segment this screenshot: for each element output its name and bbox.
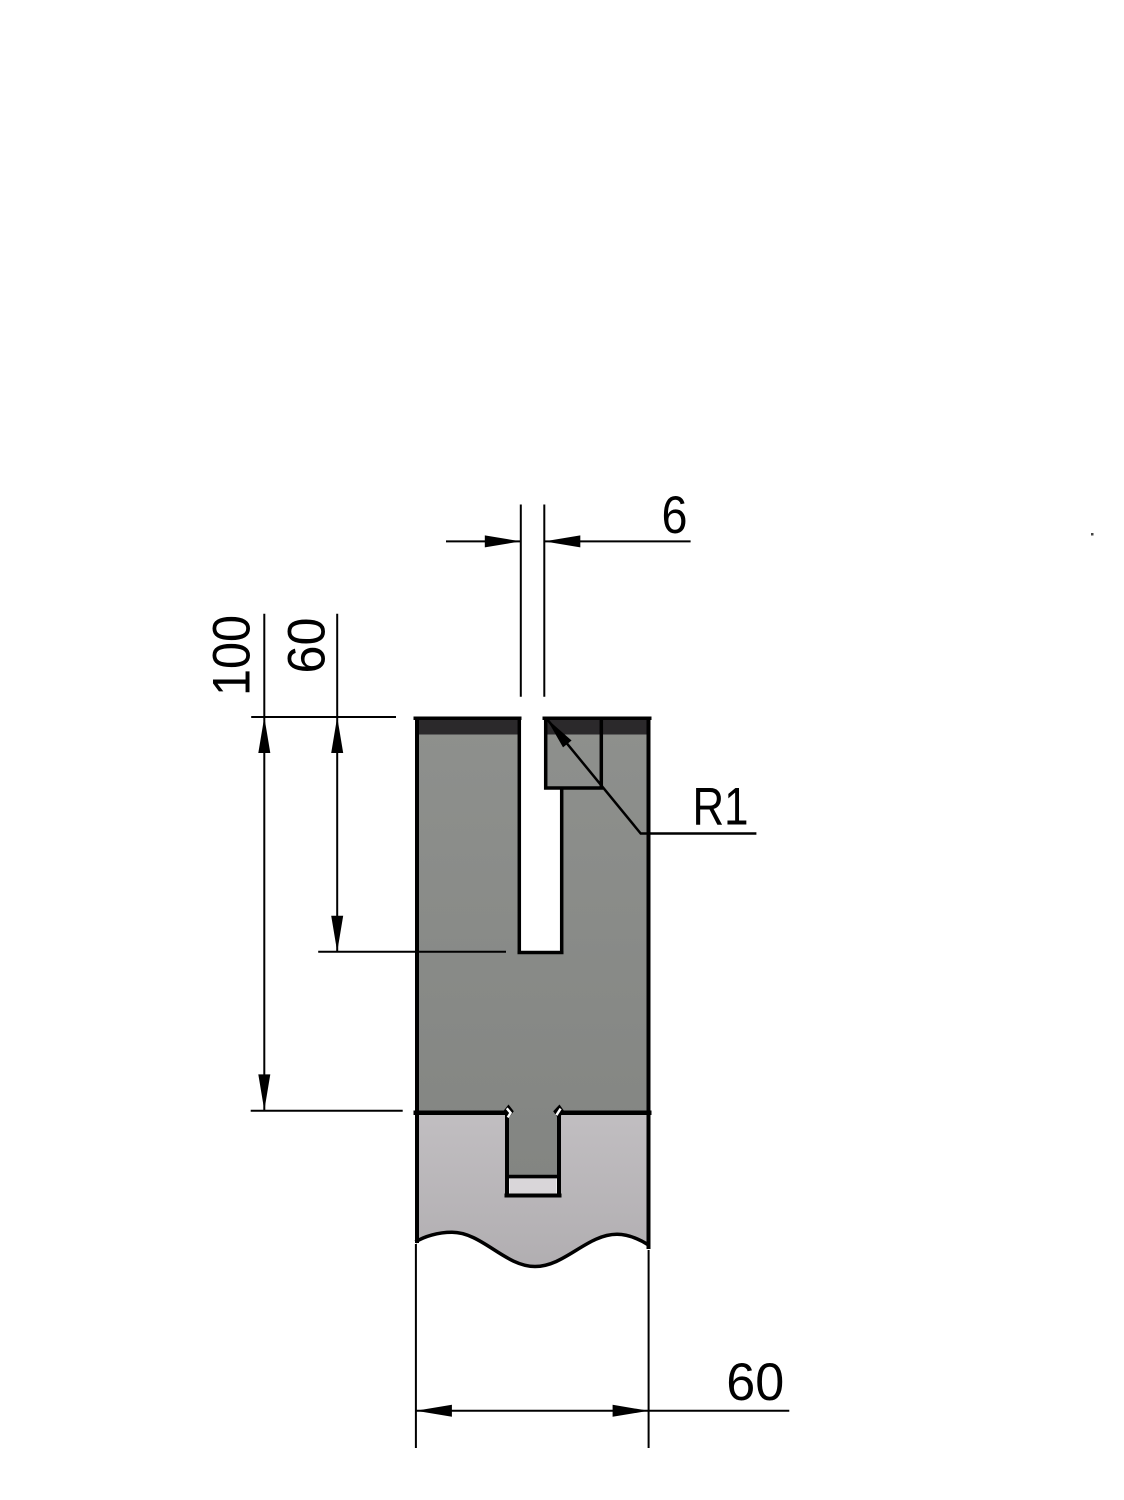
svg-text:6: 6 bbox=[662, 486, 688, 545]
svg-text:60: 60 bbox=[277, 618, 336, 674]
svg-text:100: 100 bbox=[202, 615, 261, 696]
svg-text:R1: R1 bbox=[693, 778, 749, 837]
svg-text:60: 60 bbox=[726, 1353, 784, 1412]
